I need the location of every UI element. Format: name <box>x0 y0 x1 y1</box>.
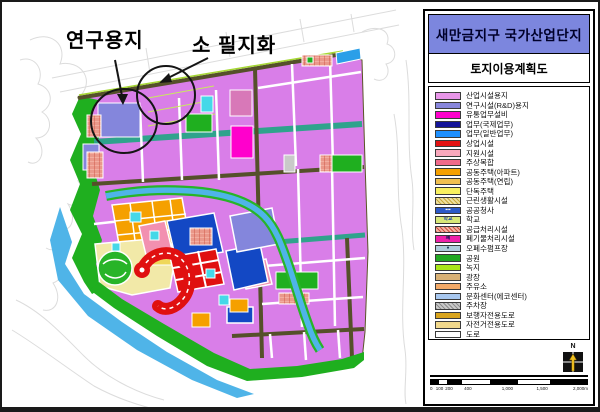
legend-swatch <box>435 149 461 157</box>
legend-item: 근린생활시설 <box>435 196 586 206</box>
scale-bar: 01002004001,0001,5002,000m <box>430 375 588 393</box>
landuse-map <box>2 2 420 407</box>
scale-label: 400 <box>464 386 472 391</box>
north-arrow-icon <box>562 350 584 374</box>
business-block <box>226 244 268 290</box>
parking-parcel <box>284 155 295 172</box>
apartment-block <box>230 299 248 312</box>
legend-swatch <box>435 254 461 262</box>
legend-swatch <box>435 273 461 281</box>
panel-subtitle: 토지이용계획도 <box>428 54 590 83</box>
legend-swatch <box>435 264 461 272</box>
legend-list: 산업시설용지연구시설(R&D)용지유통업무설비업무(국제업무)업무(일반업무)상… <box>435 91 586 339</box>
legend-swatch <box>435 159 461 167</box>
scale-label: 2,000m <box>573 386 588 391</box>
legend-swatch: ▪▪▪ <box>435 207 461 215</box>
park-dot <box>307 57 313 63</box>
north-indicator: N <box>561 343 585 379</box>
arrow-head <box>159 73 172 83</box>
scale-label: 0 <box>430 386 433 391</box>
legend-swatch: 폐 <box>435 235 461 243</box>
legend-item: 단독주택 <box>435 186 586 196</box>
legend-swatch <box>435 187 461 195</box>
scale-label: 100 <box>436 386 444 391</box>
legend-swatch <box>435 130 461 138</box>
info-panel: 새만금지구 국가산업단지 토지이용계획도 산업시설용지연구시설(R&D)용지유통… <box>423 9 595 406</box>
legend-swatch <box>435 102 461 110</box>
legend-item: 공동주택(연립) <box>435 177 586 187</box>
legend-swatch <box>435 312 461 320</box>
legend-swatch <box>435 293 461 301</box>
scale-label: 1,000 <box>502 386 513 391</box>
screenshot-root: 연구용지 소 필지화 새만금지구 국가산업단지 토지이용계획도 산업시설용지연구… <box>0 0 600 412</box>
legend-swatch <box>435 197 461 205</box>
legend-swatch <box>435 331 461 339</box>
map-panel: 연구용지 소 필지화 <box>2 2 420 407</box>
legend-swatch <box>435 168 461 176</box>
legend-item: 자전거전용도로 <box>435 320 586 330</box>
legend-item: 광장 <box>435 272 586 282</box>
legend-swatch <box>435 178 461 186</box>
scale-label: 1,500 <box>537 386 548 391</box>
legend-swatch <box>435 111 461 119</box>
legend-swatch <box>435 226 461 234</box>
legend-swatch: 학교 <box>435 216 461 224</box>
legend-swatch <box>435 321 461 329</box>
scale-bar-line <box>430 375 588 377</box>
legend-label: 도로 <box>466 329 480 340</box>
legend-swatch <box>435 121 461 129</box>
supply-facility <box>320 155 332 172</box>
legend-item: 폐폐기물처리시설 <box>435 234 586 244</box>
legend-swatch <box>435 302 461 310</box>
park-parcel <box>332 155 362 172</box>
legend-item: 상업시설 <box>435 139 586 149</box>
legend-item: ▪▪▪공공청사 <box>435 206 586 216</box>
legend-item: 문화센터(에코센터) <box>435 291 586 301</box>
annotation-small-parcel-label: 소 필지화 <box>192 29 276 58</box>
legend-item: 지원시설 <box>435 148 586 158</box>
panel-title: 새만금지구 국가산업단지 <box>428 14 590 54</box>
research-parcel <box>98 103 140 137</box>
legend-item: 업무(일반업무) <box>435 129 586 139</box>
scale-label: 200 <box>445 386 453 391</box>
park-parcel <box>186 114 212 132</box>
scale-bar-segments <box>430 379 588 385</box>
park-circle <box>98 251 132 285</box>
scale-bar-labels: 01002004001,0001,5002,000m <box>430 386 588 393</box>
apartment-block <box>192 313 210 327</box>
annotation-research-label: 연구용지 <box>66 24 144 53</box>
legend-swatch <box>435 283 461 291</box>
legend-item: 학교학교 <box>435 215 586 225</box>
legend-swatch <box>435 140 461 148</box>
legend: 산업시설용지연구시설(R&D)용지유통업무설비업무(국제업무)업무(일반업무)상… <box>428 86 590 340</box>
support-parcel <box>230 90 252 116</box>
supply-facility <box>87 152 103 178</box>
legend-swatch <box>435 92 461 100</box>
north-label: N <box>561 343 585 350</box>
distribution-parcel <box>231 126 253 158</box>
apartment-footprints <box>190 228 212 245</box>
legend-swatch: ● <box>435 245 461 253</box>
legend-item: 녹지 <box>435 263 586 273</box>
school-parcel <box>201 96 213 112</box>
legend-item: 연구시설(R&D)용지 <box>435 101 586 111</box>
legend-item: 공원 <box>435 253 586 263</box>
map-footer: N 01002004001,0001,5002,000m <box>428 343 590 401</box>
legend-item: 도로 <box>435 330 586 340</box>
legend-item: ●오폐수펌프장 <box>435 244 586 254</box>
